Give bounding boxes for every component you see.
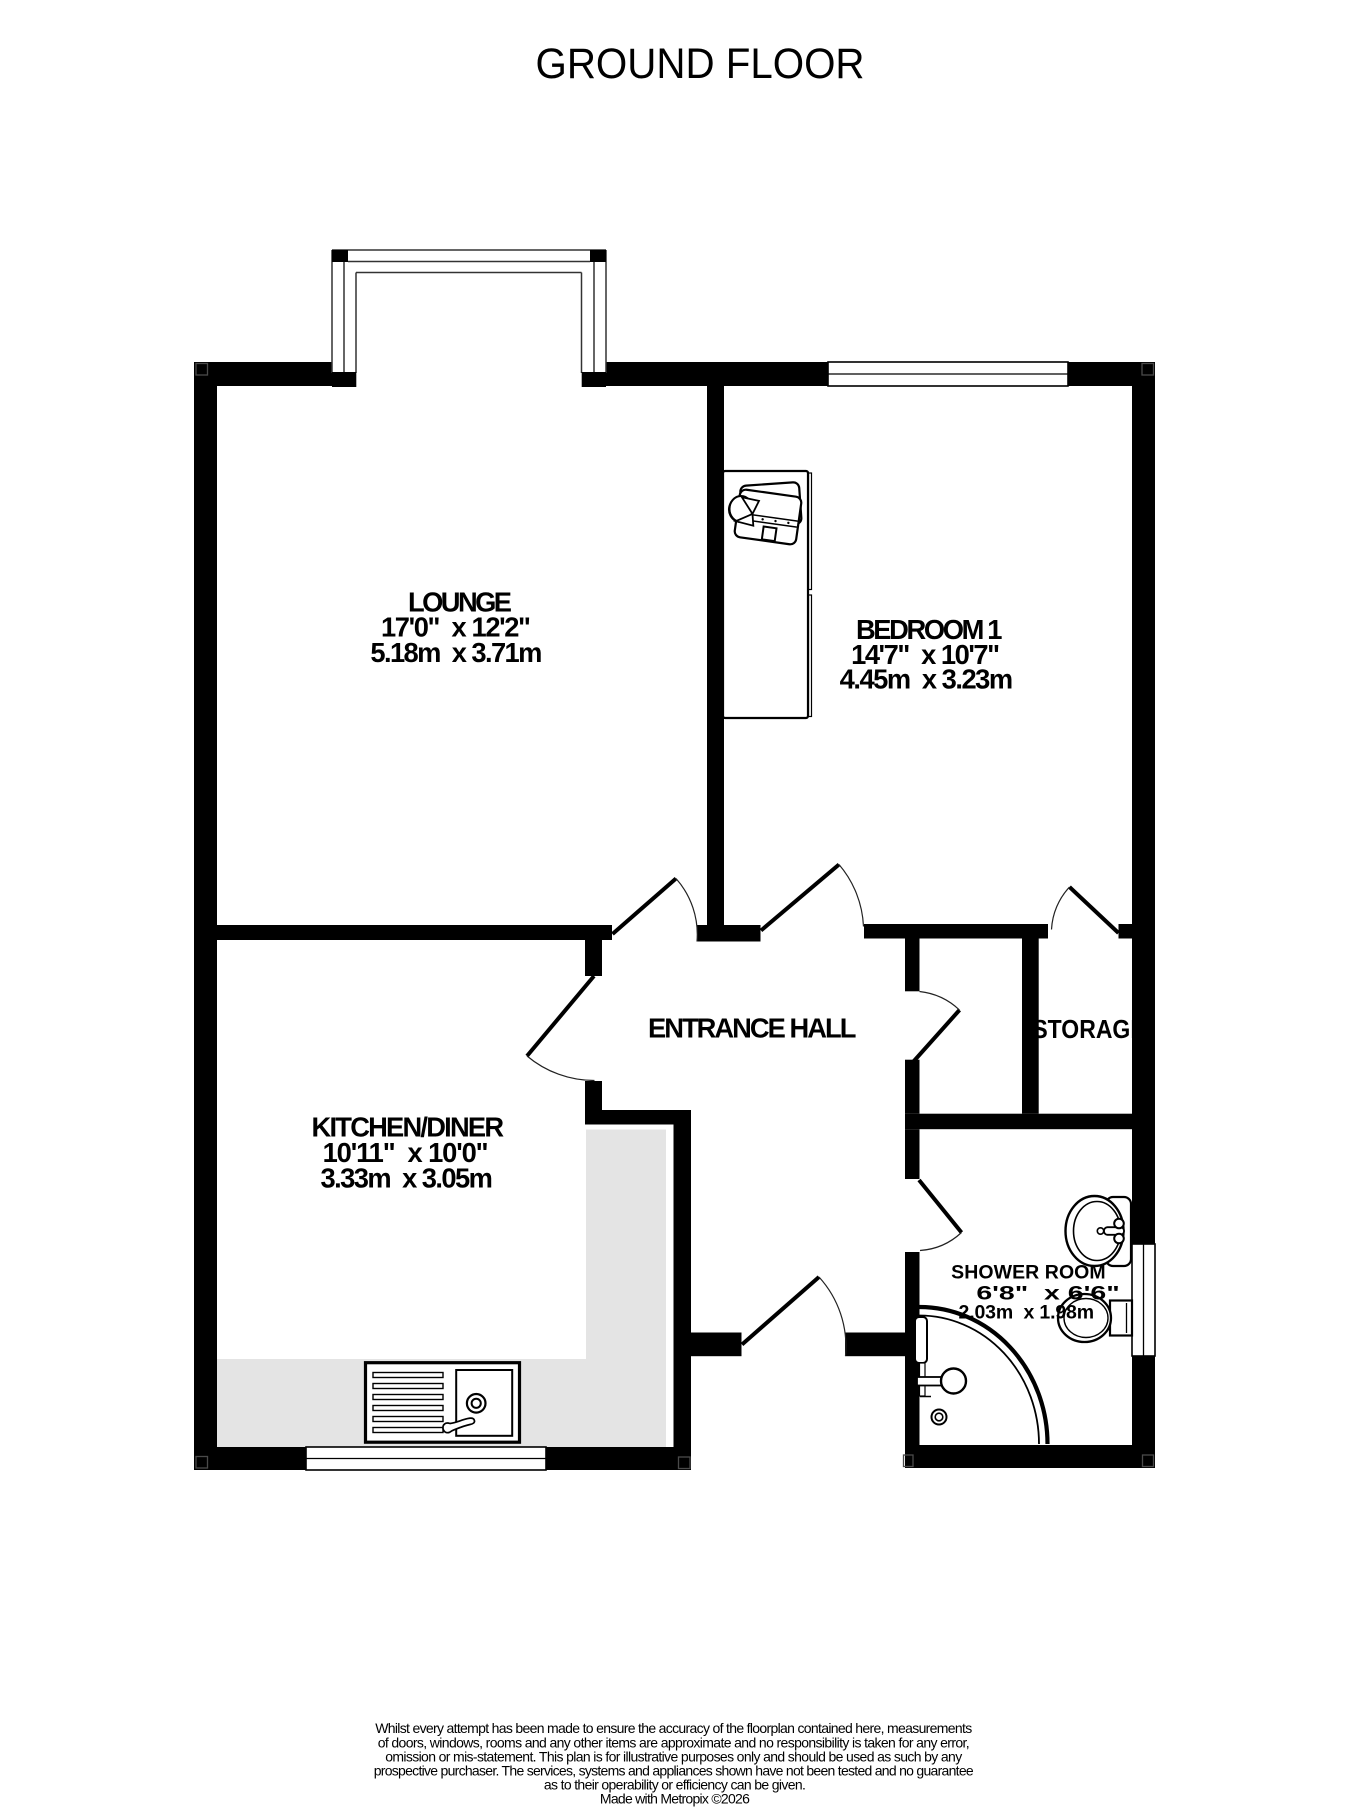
svg-text:GROUND FLOOR: GROUND FLOOR	[536, 40, 865, 88]
svg-text:SHOWER ROOM: SHOWER ROOM	[951, 1261, 1106, 1283]
svg-text:Made with Metropix ©2026: Made with Metropix ©2026	[600, 1791, 750, 1807]
svg-text:ENTRANCE HALL: ENTRANCE HALL	[648, 1013, 857, 1044]
svg-text:STORAGE: STORAGE	[1032, 1016, 1145, 1045]
svg-text:3.33m x 3.05m: 3.33m x 3.05m	[320, 1163, 493, 1194]
svg-text:4.45m x 3.23m: 4.45m x 3.23m	[840, 663, 1014, 694]
svg-text:2.03m x 1.98m: 2.03m x 1.98m	[959, 1302, 1095, 1324]
svg-text:5.18m x 3.71m: 5.18m x 3.71m	[370, 637, 542, 668]
